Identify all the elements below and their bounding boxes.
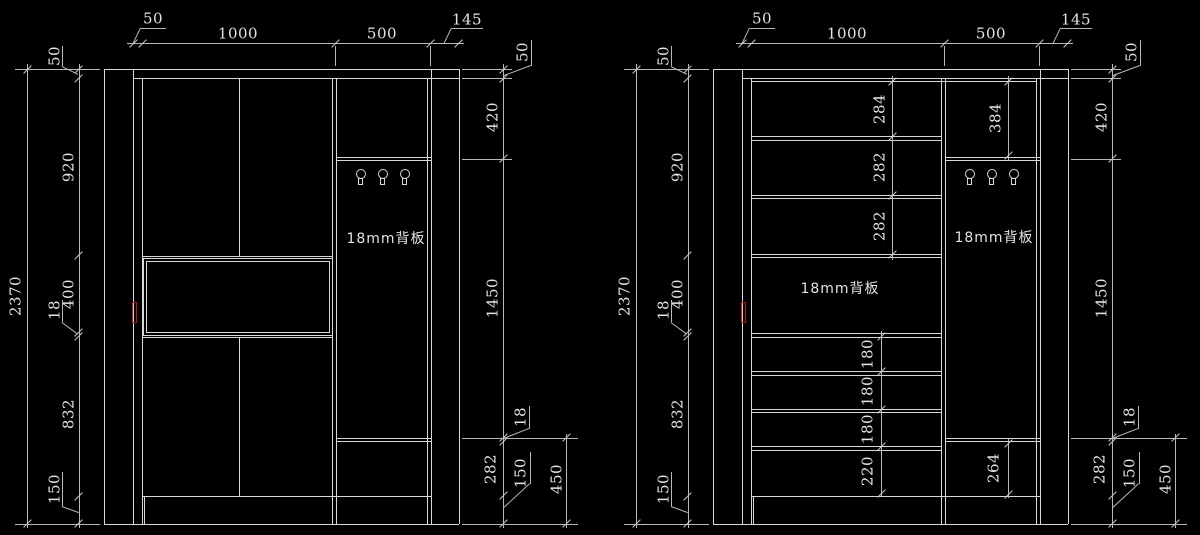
dim-label: 832 (62, 399, 77, 429)
dim-label: 1450 (486, 278, 501, 318)
cad-line (142, 496, 431, 497)
cad-line (336, 157, 431, 158)
dimension-line (944, 46, 945, 66)
cad-line (142, 256, 332, 257)
cad-line (945, 441, 1040, 442)
cad-line (133, 78, 459, 79)
cad-line (239, 78, 240, 256)
dim-label: 18 (657, 300, 672, 320)
dimension-line (531, 40, 532, 66)
dimension-line (430, 46, 431, 66)
dimension-line (27, 64, 28, 528)
cubby-dim-label: 264 (987, 453, 1002, 483)
drawer-dim-label: 220 (861, 456, 876, 486)
dimension-line (1008, 76, 1009, 161)
cad-line (751, 496, 1040, 497)
hook-icon (380, 178, 385, 185)
cad-line (239, 337, 240, 497)
dimension-line (1140, 40, 1141, 66)
cad-line (104, 69, 105, 525)
cad-line (336, 441, 431, 442)
dimension-line (1138, 406, 1139, 429)
dim-leader-line (444, 27, 452, 43)
dim-label-total-height: 2370 (9, 276, 24, 316)
dimension-line (15, 69, 100, 70)
cad-line (742, 69, 743, 525)
cubby-dim-label: 384 (989, 103, 1004, 133)
dimension-line (1039, 46, 1040, 66)
cad-line (945, 157, 1040, 158)
cad-line (752, 195, 942, 196)
dim-label: 450 (1159, 464, 1174, 494)
dimension-line (141, 28, 166, 29)
dimension-line (1071, 69, 1121, 70)
cad-line (133, 69, 134, 525)
dimension-line (15, 524, 100, 525)
hook-icon (1011, 178, 1016, 185)
dim-label: 450 (550, 464, 565, 494)
drawer-dim-label: 180 (861, 414, 876, 444)
dim-label: 50 (752, 12, 772, 27)
dimension-line (462, 69, 512, 70)
dimension-line (1071, 524, 1187, 525)
cad-line (336, 78, 337, 524)
dim-leader-line (671, 506, 688, 513)
cad-line (752, 337, 942, 338)
cad-line (945, 78, 946, 524)
cad-line (742, 78, 1068, 79)
cad-line (945, 160, 1040, 161)
hook-icon (402, 178, 407, 185)
cad-line (1040, 69, 1041, 525)
dim-label: 50 (143, 12, 163, 27)
dimension-line (62, 472, 63, 506)
cad-line (104, 524, 459, 525)
dimension-line (671, 472, 672, 506)
dim-label: 500 (976, 27, 1006, 42)
dimension-line (79, 64, 80, 528)
dim-label: 920 (671, 152, 686, 182)
dimension-line (624, 69, 709, 70)
dim-label: 150 (48, 474, 63, 504)
dimension-line (636, 64, 637, 528)
dimension-line (688, 64, 689, 528)
cad-line (752, 257, 942, 258)
dim-leader-line (1053, 27, 1061, 43)
dim-label: 1450 (1095, 278, 1110, 318)
cad-line (941, 78, 942, 524)
dimension-line (1175, 434, 1176, 528)
back-panel-label: 18mm背板 (800, 282, 879, 296)
dimension-line (503, 64, 504, 528)
dim-leader-line (503, 65, 530, 76)
dim-leader-line (62, 506, 79, 513)
dim-label: 832 (671, 399, 686, 429)
back-panel-label: 18mm背板 (954, 231, 1033, 245)
dim-label: 500 (367, 27, 397, 42)
cad-line (144, 496, 145, 524)
dim-label: 145 (452, 13, 482, 28)
cad-line (752, 375, 942, 376)
dim-label-total-height: 2370 (618, 276, 633, 316)
dimension-line (530, 452, 531, 484)
dim-label: 50 (1125, 42, 1140, 62)
dim-label: 50 (48, 46, 63, 66)
dim-label: 1000 (218, 27, 258, 42)
cad-line (752, 409, 942, 410)
dimension-line (1061, 28, 1092, 29)
dimension-line (1008, 438, 1009, 498)
panel-outline (146, 261, 330, 333)
cad-line (1068, 69, 1069, 525)
cad-line (752, 254, 942, 255)
dimension-line (529, 406, 530, 429)
dim-label: 400 (671, 279, 686, 309)
dim-label: 145 (1061, 13, 1091, 28)
cad-line (752, 412, 942, 413)
dim-label: 282 (484, 454, 499, 484)
dim-leader-line (670, 322, 687, 335)
hook-icon (967, 178, 972, 185)
cad-line (752, 198, 942, 199)
cad-line (713, 524, 1068, 525)
dim-label: 400 (62, 279, 77, 309)
cad-line (752, 450, 942, 451)
dimension-line (452, 28, 483, 29)
cad-line (459, 69, 460, 525)
hook-icon (989, 178, 994, 185)
cad-line (336, 160, 431, 161)
drawer-dim-label: 180 (861, 376, 876, 406)
dimension-line (624, 524, 709, 525)
dimension-line (671, 300, 672, 322)
dim-leader-line (1112, 65, 1139, 76)
shelf-dim-label: 282 (873, 211, 888, 241)
cad-line (752, 136, 942, 137)
dim-label: 18 (514, 407, 529, 427)
dimension-line (1071, 438, 1187, 439)
cad-line (945, 438, 1040, 439)
dimension-line (671, 46, 672, 66)
dimension-line (750, 28, 775, 29)
cad-line (713, 69, 1068, 70)
cad-line (713, 69, 714, 525)
door-handle (741, 302, 746, 323)
dimension-line (62, 46, 63, 66)
dim-label: 282 (1093, 454, 1108, 484)
dimension-line (1071, 78, 1121, 79)
dimension-line (736, 43, 1073, 44)
back-panel-label: 18mm背板 (346, 232, 425, 246)
dimension-line (566, 434, 567, 528)
dim-label: 150 (514, 458, 529, 488)
cad-line (752, 446, 942, 447)
cad-line (752, 371, 942, 372)
drawer-dim-label: 180 (861, 339, 876, 369)
dim-leader-line (61, 322, 78, 335)
dim-label: 50 (657, 46, 672, 66)
dimension-line (881, 331, 882, 497)
cad-line (1036, 78, 1037, 524)
dim-label: 920 (62, 152, 77, 182)
dimension-line (335, 46, 336, 66)
dimension-line (462, 159, 512, 160)
cad-line (431, 69, 432, 525)
dimension-line (1139, 452, 1140, 484)
dimension-line (62, 300, 63, 322)
dim-label: 1000 (827, 27, 867, 42)
cad-line (142, 337, 332, 338)
dim-label: 18 (48, 300, 63, 320)
cad-line (753, 496, 754, 524)
cad-line (336, 438, 431, 439)
dimension-line (462, 78, 512, 79)
dimension-line (462, 524, 578, 525)
cad-line (427, 78, 428, 524)
dimension-line (127, 43, 464, 44)
dim-label: 18 (1123, 407, 1138, 427)
cad-line (751, 78, 752, 525)
shelf-dim-label: 282 (873, 152, 888, 182)
dimension-line (1112, 64, 1113, 528)
dim-label: 150 (657, 474, 672, 504)
shelf-dim-label: 284 (873, 94, 888, 124)
dimension-line (462, 438, 578, 439)
dimension-line (1071, 159, 1121, 160)
cad-line (752, 140, 942, 141)
hook-icon (358, 178, 363, 185)
dim-label: 150 (1123, 458, 1138, 488)
dim-label: 50 (516, 42, 531, 62)
cad-line (752, 333, 942, 334)
cad-line (104, 69, 459, 70)
door-handle (132, 302, 137, 323)
dim-label: 420 (486, 102, 501, 132)
cad-drawing-canvas: 50 1000 500 145 2370 50 920 400 18 832 1… (0, 0, 1200, 535)
dimension-line (892, 76, 893, 260)
dim-label: 420 (1095, 102, 1110, 132)
